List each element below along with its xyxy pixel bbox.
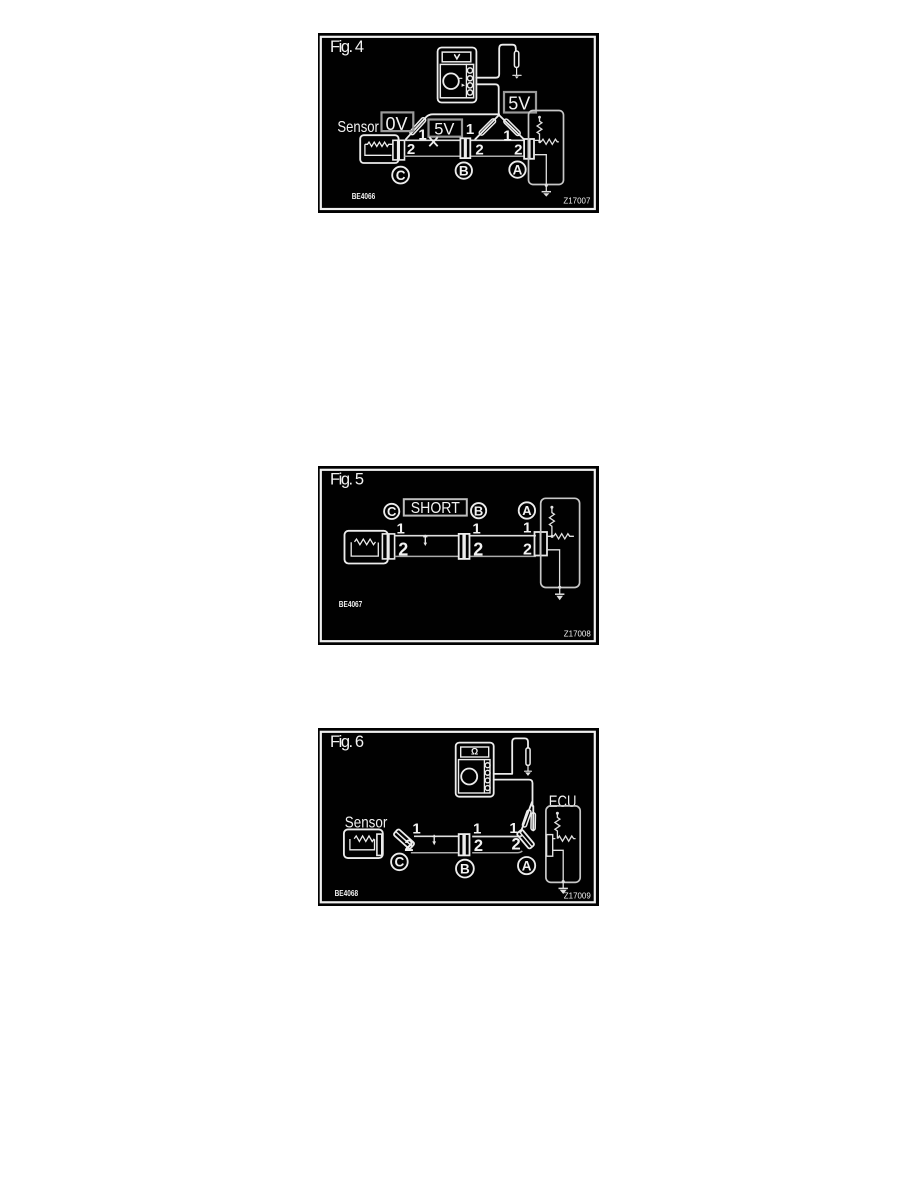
svg-text:2: 2: [474, 837, 483, 855]
svg-text:2: 2: [404, 837, 413, 855]
svg-text:2: 2: [514, 142, 522, 159]
svg-text:1: 1: [472, 520, 480, 537]
svg-text:1: 1: [412, 820, 420, 837]
svg-text:C: C: [395, 855, 405, 870]
svg-text:1: 1: [523, 520, 531, 537]
svg-text:Sensor: Sensor: [337, 119, 379, 136]
svg-text:1: 1: [418, 127, 426, 144]
svg-text:2: 2: [475, 142, 483, 159]
svg-text:BE4066: BE4066: [352, 192, 376, 201]
svg-text:A: A: [513, 162, 523, 177]
svg-text:Fig. 6: Fig. 6: [330, 733, 364, 751]
svg-text:BE4068: BE4068: [335, 889, 359, 898]
svg-text:Fig. 4: Fig. 4: [330, 38, 364, 56]
svg-text:BE4067: BE4067: [339, 600, 363, 609]
svg-text:C: C: [396, 168, 406, 183]
svg-text:B: B: [459, 163, 469, 178]
svg-text:A: A: [522, 859, 532, 874]
svg-text:1: 1: [503, 128, 511, 145]
svg-text:ECU: ECU: [549, 792, 577, 811]
svg-text:Ω: Ω: [471, 746, 478, 756]
svg-text:B: B: [460, 862, 470, 877]
svg-text:B: B: [474, 503, 483, 518]
svg-text:SHORT: SHORT: [411, 500, 460, 517]
svg-text:2: 2: [407, 141, 415, 158]
svg-text:0V: 0V: [385, 114, 407, 134]
svg-text:A: A: [522, 503, 532, 518]
svg-text:1: 1: [466, 121, 474, 138]
svg-text:Z17007: Z17007: [563, 196, 590, 206]
svg-text:5V: 5V: [508, 94, 530, 114]
svg-text:C: C: [387, 504, 397, 519]
svg-text:2: 2: [512, 836, 521, 854]
svg-text:Z17009: Z17009: [564, 891, 591, 901]
svg-text:1: 1: [473, 821, 481, 838]
svg-text:Fig. 5: Fig. 5: [330, 471, 364, 489]
svg-text:5V: 5V: [434, 120, 454, 138]
svg-text:Z17008: Z17008: [564, 628, 591, 638]
